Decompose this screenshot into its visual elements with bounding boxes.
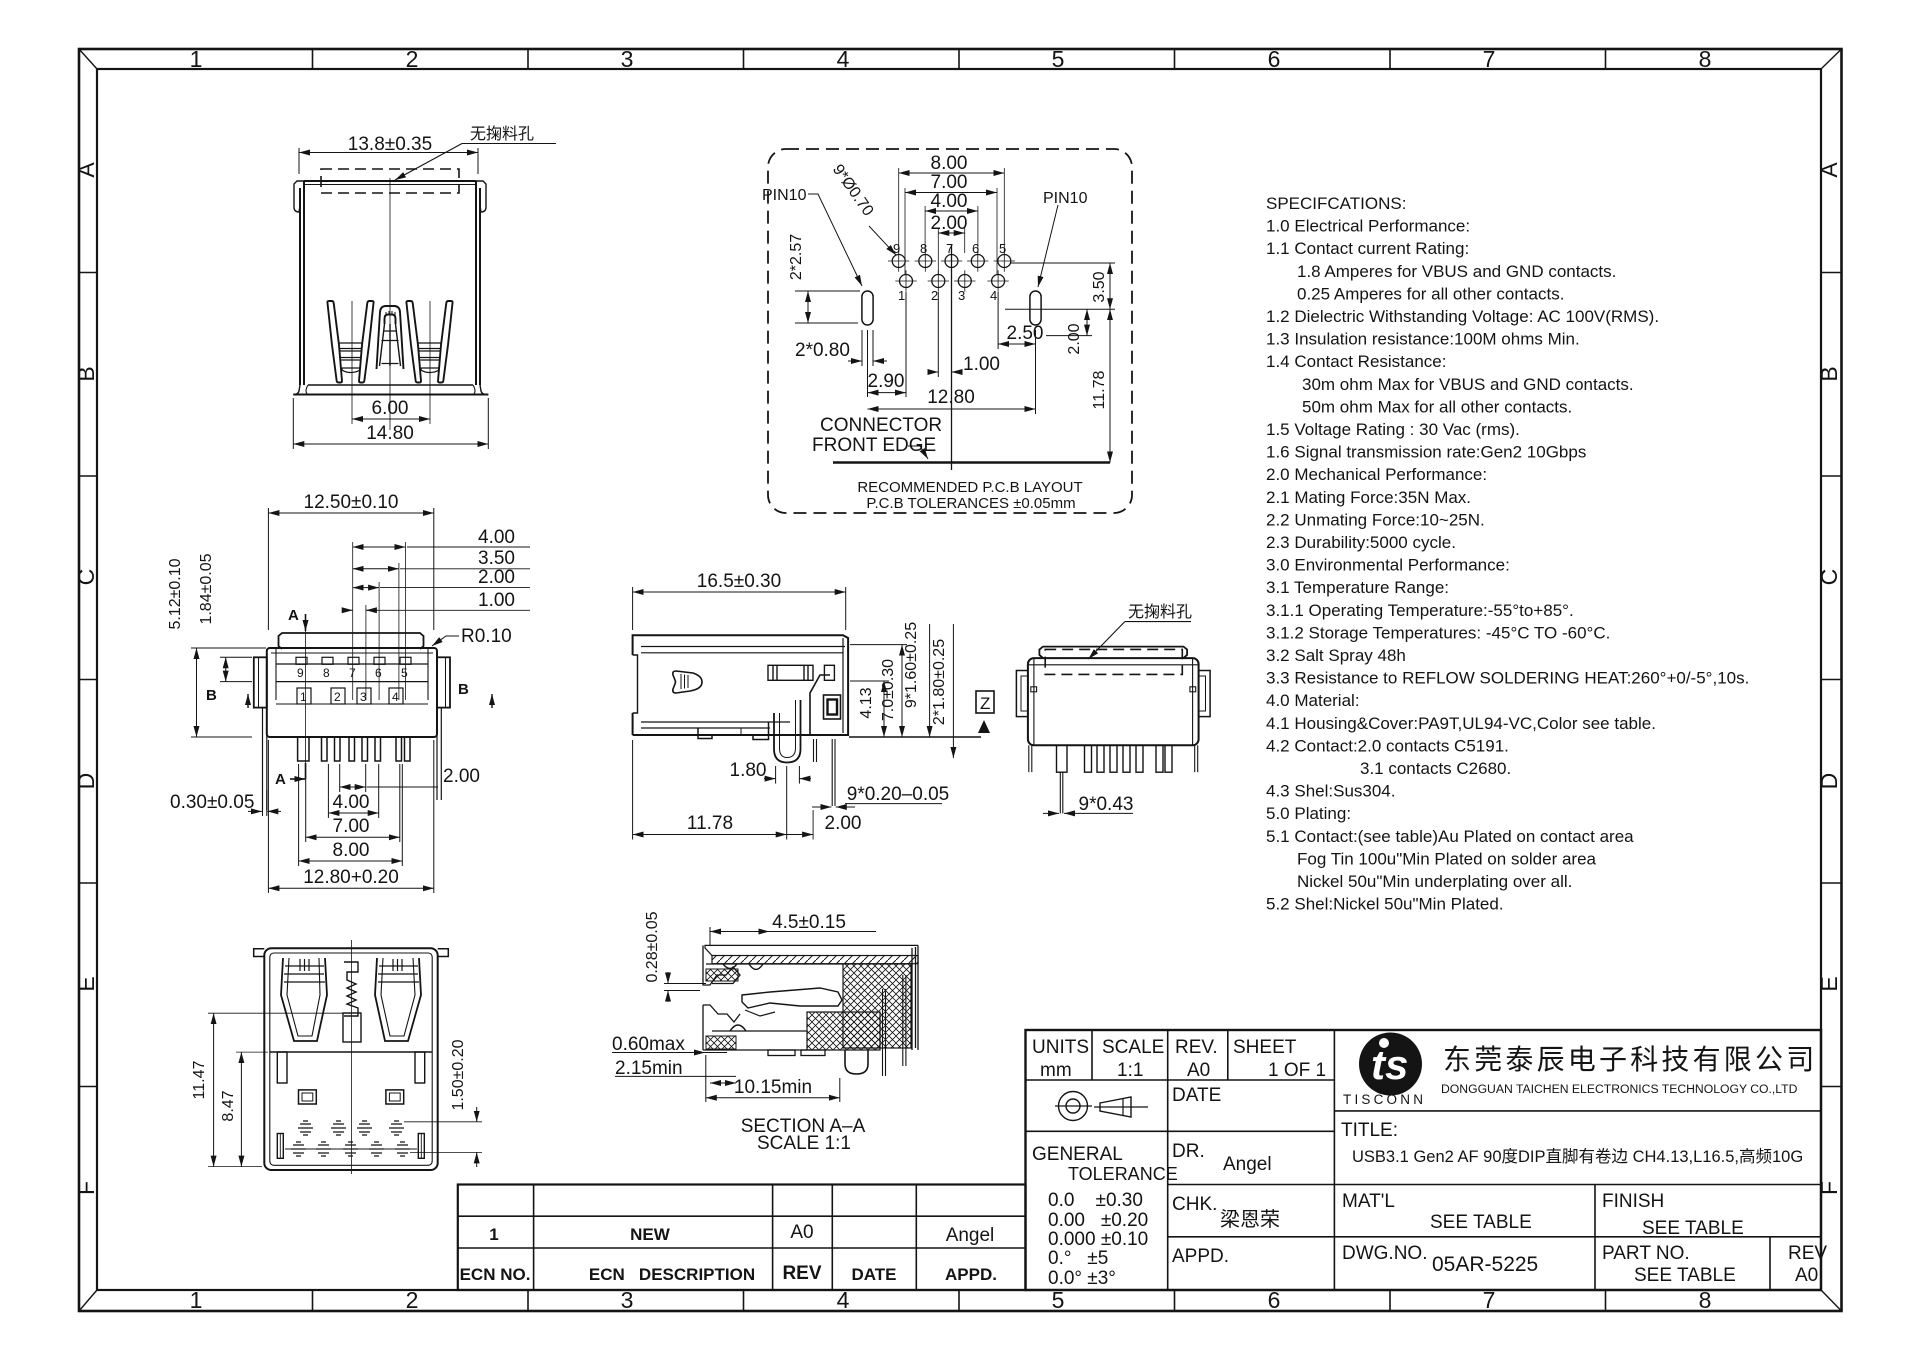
svg-text:0.0 ±0.30: 0.0 ±0.30 (1048, 1190, 1143, 1211)
svg-text:13.8±0.35: 13.8±0.35 (348, 134, 432, 155)
svg-text:mm: mm (1040, 1060, 1072, 1081)
svg-text:2.15min: 2.15min (615, 1058, 683, 1079)
svg-text:5.2 Shel:Nickel 50u"Min Pla: 5.2 Shel:Nickel 50u"Min Plated. (1266, 895, 1504, 914)
svg-text:0.28±0.05: 0.28±0.05 (644, 911, 661, 982)
svg-text:R0.10: R0.10 (461, 626, 512, 647)
svg-text:2: 2 (406, 46, 419, 72)
svg-text:1.80: 1.80 (730, 760, 767, 781)
svg-text:1: 1 (898, 288, 905, 303)
svg-text:3.50: 3.50 (478, 548, 515, 569)
svg-text:Fog Tin 100u"Min Plated on: Fog Tin 100u"Min Plated on solder area (1297, 849, 1597, 868)
svg-text:3: 3 (360, 690, 367, 704)
svg-text:3.2 Salt Spray 48h: 3.2 Salt Spray 48h (1266, 646, 1406, 665)
svg-text:1.8 Amperes for VBUS and: 1.8 Amperes for VBUS and GND contacts. (1297, 262, 1616, 281)
svg-text:5: 5 (1052, 46, 1065, 72)
svg-text:B: B (73, 366, 99, 381)
svg-text:PIN10: PIN10 (762, 187, 807, 204)
svg-text:东莞泰辰电子科技有限公司: 东莞泰辰电子科技有限公司 (1443, 1044, 1817, 1075)
svg-text:9: 9 (893, 241, 900, 256)
svg-text:PIN10: PIN10 (1043, 190, 1088, 207)
svg-text:1.00: 1.00 (963, 354, 1000, 375)
svg-text:0.60max: 0.60max (612, 1034, 685, 1055)
svg-text:9*0.43: 9*0.43 (1079, 794, 1134, 815)
svg-text:10.15min: 10.15min (734, 1077, 812, 1098)
svg-text:1: 1 (190, 46, 203, 72)
svg-text:C: C (73, 569, 99, 586)
svg-text:A0: A0 (1187, 1060, 1210, 1081)
svg-text:2*2.57: 2*2.57 (788, 234, 805, 280)
svg-text:Nickel 50u"Min underplating: Nickel 50u"Min underplating over all. (1297, 872, 1572, 891)
svg-text:1.5 Voltage Rating : 30 V: 1.5 Voltage Rating : 30 Vac (rms). (1266, 420, 1520, 439)
svg-text:2.1 Mating Force:35N Max.: 2.1 Mating Force:35N Max. (1266, 488, 1471, 507)
svg-text:DR.: DR. (1172, 1141, 1205, 1162)
svg-text:1: 1 (300, 690, 307, 704)
svg-text:4.00: 4.00 (478, 527, 515, 548)
svg-text:FINISH: FINISH (1602, 1191, 1664, 1212)
svg-text:1 OF 1: 1 OF 1 (1268, 1060, 1326, 1081)
svg-text:8: 8 (1699, 46, 1712, 72)
svg-text:DWG.NO.: DWG.NO. (1342, 1243, 1428, 1264)
svg-text:2.50: 2.50 (1007, 323, 1044, 344)
svg-text:8.00: 8.00 (333, 840, 370, 861)
svg-text:12.50±0.10: 12.50±0.10 (304, 492, 399, 513)
svg-text:0.25 Amperes for all other: 0.25 Amperes for all other contacts. (1297, 284, 1564, 303)
svg-text:REV: REV (1788, 1243, 1827, 1264)
svg-text:4.13: 4.13 (858, 687, 875, 718)
svg-text:SCALE: SCALE (1102, 1037, 1164, 1058)
svg-text:14.80: 14.80 (366, 423, 414, 444)
svg-text:11.47: 11.47 (191, 1060, 208, 1099)
svg-text:NEW: NEW (630, 1225, 671, 1244)
svg-text:7: 7 (349, 666, 356, 680)
svg-text:SHEET: SHEET (1233, 1037, 1297, 1058)
svg-text:2: 2 (334, 690, 341, 704)
svg-text:12.80: 12.80 (927, 387, 975, 408)
svg-text:2.2 Unmating Force:10~25N.: 2.2 Unmating Force:10~25N. (1266, 510, 1485, 529)
svg-text:1.4 Contact Resistance:: 1.4 Contact Resistance: (1266, 352, 1446, 371)
svg-text:3: 3 (958, 288, 965, 303)
svg-text:8.00: 8.00 (931, 153, 968, 174)
svg-text:TOLERANCE: TOLERANCE (1068, 1164, 1178, 1184)
svg-text:PART NO.: PART NO. (1602, 1243, 1690, 1264)
svg-text:4.2 Contact:2.0 contacts C5: 4.2 Contact:2.0 contacts C5191. (1266, 736, 1509, 755)
svg-text:8: 8 (920, 241, 927, 256)
svg-text:RECOMMENDED P.C.B LAYOUT: RECOMMENDED P.C.B LAYOUT (857, 479, 1082, 496)
svg-text:8: 8 (323, 666, 330, 680)
svg-text:B: B (206, 687, 217, 704)
svg-text:E: E (73, 976, 99, 991)
svg-text:2.00: 2.00 (931, 213, 968, 234)
svg-text:E: E (1816, 976, 1842, 991)
svg-text:DONGGUAN TAICHEN ELECTRONICS: DONGGUAN TAICHEN ELECTRONICS TECHNOLOGY … (1441, 1082, 1798, 1096)
svg-text:5.12±0.10: 5.12±0.10 (167, 558, 184, 629)
svg-text:P.C.B TOLERANCES ±0.05mm: P.C.B TOLERANCES ±0.05mm (866, 495, 1075, 512)
svg-text:7.0±0.30: 7.0±0.30 (880, 659, 897, 721)
svg-text:无掬料孔: 无掬料孔 (470, 125, 534, 143)
svg-text:0.000 ±0.10: 0.000 ±0.10 (1048, 1229, 1148, 1250)
svg-text:1.1 Contact current Rating:: 1.1 Contact current Rating: (1266, 239, 1469, 258)
svg-text:5.1 Contact:(see table)Au P: 5.1 Contact:(see table)Au Plated on cont… (1266, 827, 1634, 846)
svg-text:7.00: 7.00 (333, 816, 370, 837)
svg-text:4: 4 (837, 46, 850, 72)
svg-text:4.00: 4.00 (931, 191, 968, 212)
svg-text:CONNECTOR: CONNECTOR (820, 415, 942, 436)
svg-text:2.90: 2.90 (868, 371, 905, 392)
svg-text:11.78: 11.78 (687, 813, 733, 834)
svg-text:Angel: Angel (946, 1225, 995, 1246)
svg-text:SEE TABLE: SEE TABLE (1642, 1218, 1744, 1239)
svg-text:4.5±0.15: 4.5±0.15 (772, 912, 846, 933)
svg-text:4.1 Housing&Cover:PA9T,UL94-V: 4.1 Housing&Cover:PA9T,UL94-VC,Color see… (1266, 714, 1656, 733)
svg-text:1:1: 1:1 (1117, 1060, 1143, 1081)
svg-text:DATE: DATE (1172, 1085, 1221, 1106)
svg-text:3.1.2 Storage Temperatures:: 3.1.2 Storage Temperatures: -45°C TO -60… (1266, 623, 1610, 642)
svg-text:5: 5 (401, 666, 408, 680)
svg-text:TISCONN: TISCONN (1343, 1092, 1426, 1107)
svg-text:16.5±0.30: 16.5±0.30 (697, 571, 781, 592)
svg-text:1.6 Signal transmission rat: 1.6 Signal transmission rate:Gen2 10Gbps (1266, 443, 1586, 462)
svg-text:2: 2 (931, 288, 938, 303)
svg-text:A0: A0 (1795, 1265, 1818, 1286)
svg-text:4.0 Material:: 4.0 Material: (1266, 691, 1360, 710)
svg-text:12.80+0.20: 12.80+0.20 (303, 867, 399, 888)
svg-text:3.0 Environmental Performanc: 3.0 Environmental Performance: (1266, 556, 1510, 575)
svg-text:2: 2 (406, 1287, 419, 1313)
svg-text:4: 4 (990, 288, 997, 303)
svg-text:1.2 Dielectric Withstanding: 1.2 Dielectric Withstanding Voltage: AC … (1266, 307, 1659, 326)
svg-text:ts: ts (1371, 1041, 1408, 1088)
svg-text:A: A (73, 162, 99, 178)
svg-text:1: 1 (190, 1287, 203, 1313)
svg-text:7: 7 (1483, 46, 1496, 72)
svg-text:0.° ±5: 0.° ±5 (1048, 1248, 1108, 1269)
svg-text:1.50±0.20: 1.50±0.20 (450, 1039, 467, 1110)
svg-text:D: D (73, 773, 99, 790)
svg-text:REV.: REV. (1175, 1037, 1218, 1058)
svg-text:3.1 contacts C2680.: 3.1 contacts C2680. (1360, 759, 1511, 778)
svg-text:11.78: 11.78 (1091, 370, 1108, 409)
svg-text:SCALE 1:1: SCALE 1:1 (757, 1133, 851, 1154)
svg-text:6.00: 6.00 (372, 398, 409, 419)
svg-text:F: F (73, 1181, 99, 1195)
svg-text:50m ohm Max for all other: 50m ohm Max for all other contacts. (1302, 397, 1572, 416)
svg-text:0.30±0.05: 0.30±0.05 (170, 792, 254, 813)
svg-text:7.00: 7.00 (931, 172, 968, 193)
svg-text:SPECIFCATIONS:: SPECIFCATIONS: (1266, 194, 1406, 213)
svg-text:A0: A0 (790, 1222, 813, 1243)
svg-text:GENERAL: GENERAL (1032, 1144, 1123, 1165)
svg-text:ECN DESCRIPTION: ECN DESCRIPTION (589, 1265, 755, 1284)
svg-text:0.0° ±3°: 0.0° ±3° (1048, 1268, 1116, 1289)
svg-text:无掬料孔: 无掬料孔 (1128, 603, 1192, 621)
svg-text:2.0 Mechanical Performance:: 2.0 Mechanical Performance: (1266, 465, 1487, 484)
svg-text:ECN NO.: ECN NO. (460, 1265, 531, 1284)
svg-text:APPD.: APPD. (1172, 1246, 1229, 1267)
svg-text:1.84±0.05: 1.84±0.05 (198, 553, 215, 624)
svg-text:2.00: 2.00 (443, 766, 480, 787)
svg-text:4.00: 4.00 (333, 792, 370, 813)
svg-text:0.00 ±0.20: 0.00 ±0.20 (1048, 1210, 1148, 1231)
svg-text:梁恩荣: 梁恩荣 (1220, 1208, 1280, 1231)
svg-text:1.00: 1.00 (478, 590, 515, 611)
svg-text:6: 6 (972, 241, 979, 256)
svg-text:05AR-5225: 05AR-5225 (1432, 1253, 1538, 1276)
svg-text:1.3 Insulation resistance:10: 1.3 Insulation resistance:100M ohms Min. (1266, 330, 1580, 349)
svg-text:3.1.1 Operating Temperature:: 3.1.1 Operating Temperature:-55°to+85°. (1266, 601, 1574, 620)
svg-text:2.00: 2.00 (478, 567, 515, 588)
svg-text:SEE TABLE: SEE TABLE (1634, 1265, 1736, 1286)
svg-text:4.3 Shel:Sus304.: 4.3 Shel:Sus304. (1266, 782, 1395, 801)
svg-text:D: D (1816, 773, 1842, 790)
svg-text:2*1.80±0.25: 2*1.80±0.25 (931, 639, 948, 725)
svg-text:30m ohm Max for VBUS and: 30m ohm Max for VBUS and GND contacts. (1302, 375, 1634, 394)
svg-text:2.00: 2.00 (825, 813, 862, 834)
svg-text:2*0.80: 2*0.80 (795, 340, 850, 361)
svg-text:9: 9 (297, 666, 304, 680)
svg-text:B: B (458, 681, 469, 698)
svg-text:C: C (1816, 569, 1842, 586)
svg-text:2.3 Durability:5000 cycle.: 2.3 Durability:5000 cycle. (1266, 533, 1456, 552)
svg-text:1.0 Electrical Performance:: 1.0 Electrical Performance: (1266, 217, 1470, 236)
svg-text:8.47: 8.47 (220, 1090, 237, 1121)
svg-text:B: B (1816, 366, 1842, 381)
svg-text:A: A (1816, 162, 1842, 178)
svg-text:REV: REV (782, 1263, 821, 1284)
svg-text:3.3 Resistance to REFLOW S: 3.3 Resistance to REFLOW SOLDERING HEAT:… (1266, 669, 1749, 688)
svg-text:3.1 Temperature Range:: 3.1 Temperature Range: (1266, 578, 1449, 597)
svg-text:TITLE:: TITLE: (1341, 1120, 1398, 1141)
svg-text:1: 1 (489, 1225, 498, 1244)
svg-text:4: 4 (392, 690, 399, 704)
svg-text:5: 5 (999, 241, 1006, 256)
svg-text:Z: Z (980, 694, 990, 713)
svg-text:DATE: DATE (851, 1265, 896, 1284)
svg-text:2.00: 2.00 (1066, 323, 1083, 354)
svg-text:SEE TABLE: SEE TABLE (1430, 1212, 1532, 1233)
svg-text:USB3.1 Gen2 AF 90度DIP直脚有卷边: USB3.1 Gen2 AF 90度DIP直脚有卷边 CH4.13,L16.5,… (1352, 1147, 1803, 1166)
svg-text:6: 6 (375, 666, 382, 680)
svg-text:UNITS: UNITS (1032, 1037, 1089, 1058)
svg-text:A: A (288, 607, 299, 624)
svg-text:APPD.: APPD. (945, 1265, 997, 1284)
svg-text:A: A (275, 771, 286, 788)
svg-text:3: 3 (621, 46, 634, 72)
svg-text:MAT'L: MAT'L (1342, 1191, 1395, 1212)
svg-text:Angel: Angel (1223, 1154, 1272, 1175)
svg-text:9*1.60±0.25: 9*1.60±0.25 (903, 622, 920, 708)
svg-text:9*0.20–0.05: 9*0.20–0.05 (847, 784, 950, 805)
svg-text:CHK.: CHK. (1172, 1194, 1217, 1215)
svg-text:6: 6 (1268, 46, 1281, 72)
svg-text:3.50: 3.50 (1091, 271, 1108, 302)
svg-text:5.0 Plating:: 5.0 Plating: (1266, 804, 1351, 823)
